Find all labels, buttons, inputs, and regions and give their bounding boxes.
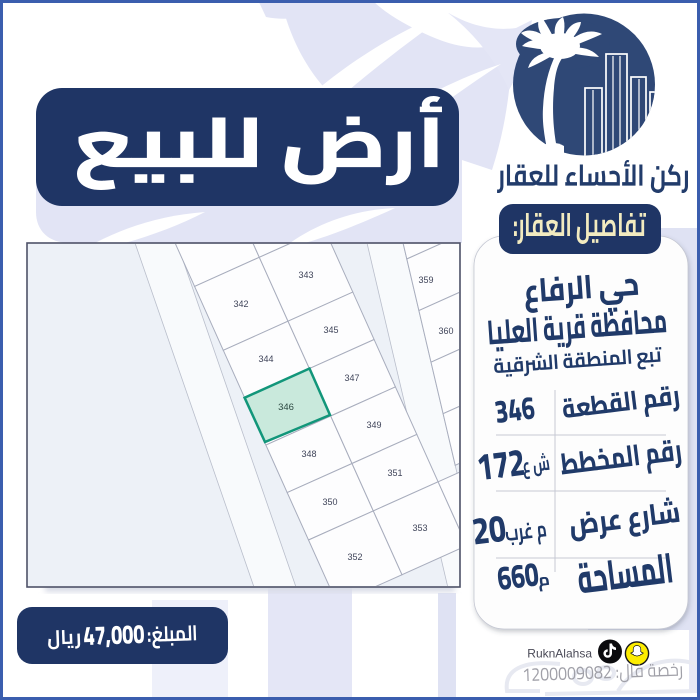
- svg-text:349: 349: [366, 420, 381, 430]
- svg-text:352: 352: [347, 552, 362, 562]
- svg-text:343: 343: [298, 270, 313, 280]
- svg-text:360: 360: [438, 326, 453, 336]
- svg-text:351: 351: [387, 468, 402, 478]
- svg-text:347: 347: [344, 373, 359, 383]
- svg-text:359: 359: [418, 275, 433, 285]
- svg-text:344: 344: [258, 354, 273, 364]
- svg-text:346: 346: [278, 402, 294, 413]
- svg-text:348: 348: [301, 449, 316, 459]
- svg-text:353: 353: [412, 523, 427, 533]
- svg-text:345: 345: [323, 325, 338, 335]
- svg-text:350: 350: [322, 497, 337, 507]
- svg-text:342: 342: [233, 299, 248, 309]
- svg-text:RuknAlahsa: RuknAlahsa: [527, 647, 592, 661]
